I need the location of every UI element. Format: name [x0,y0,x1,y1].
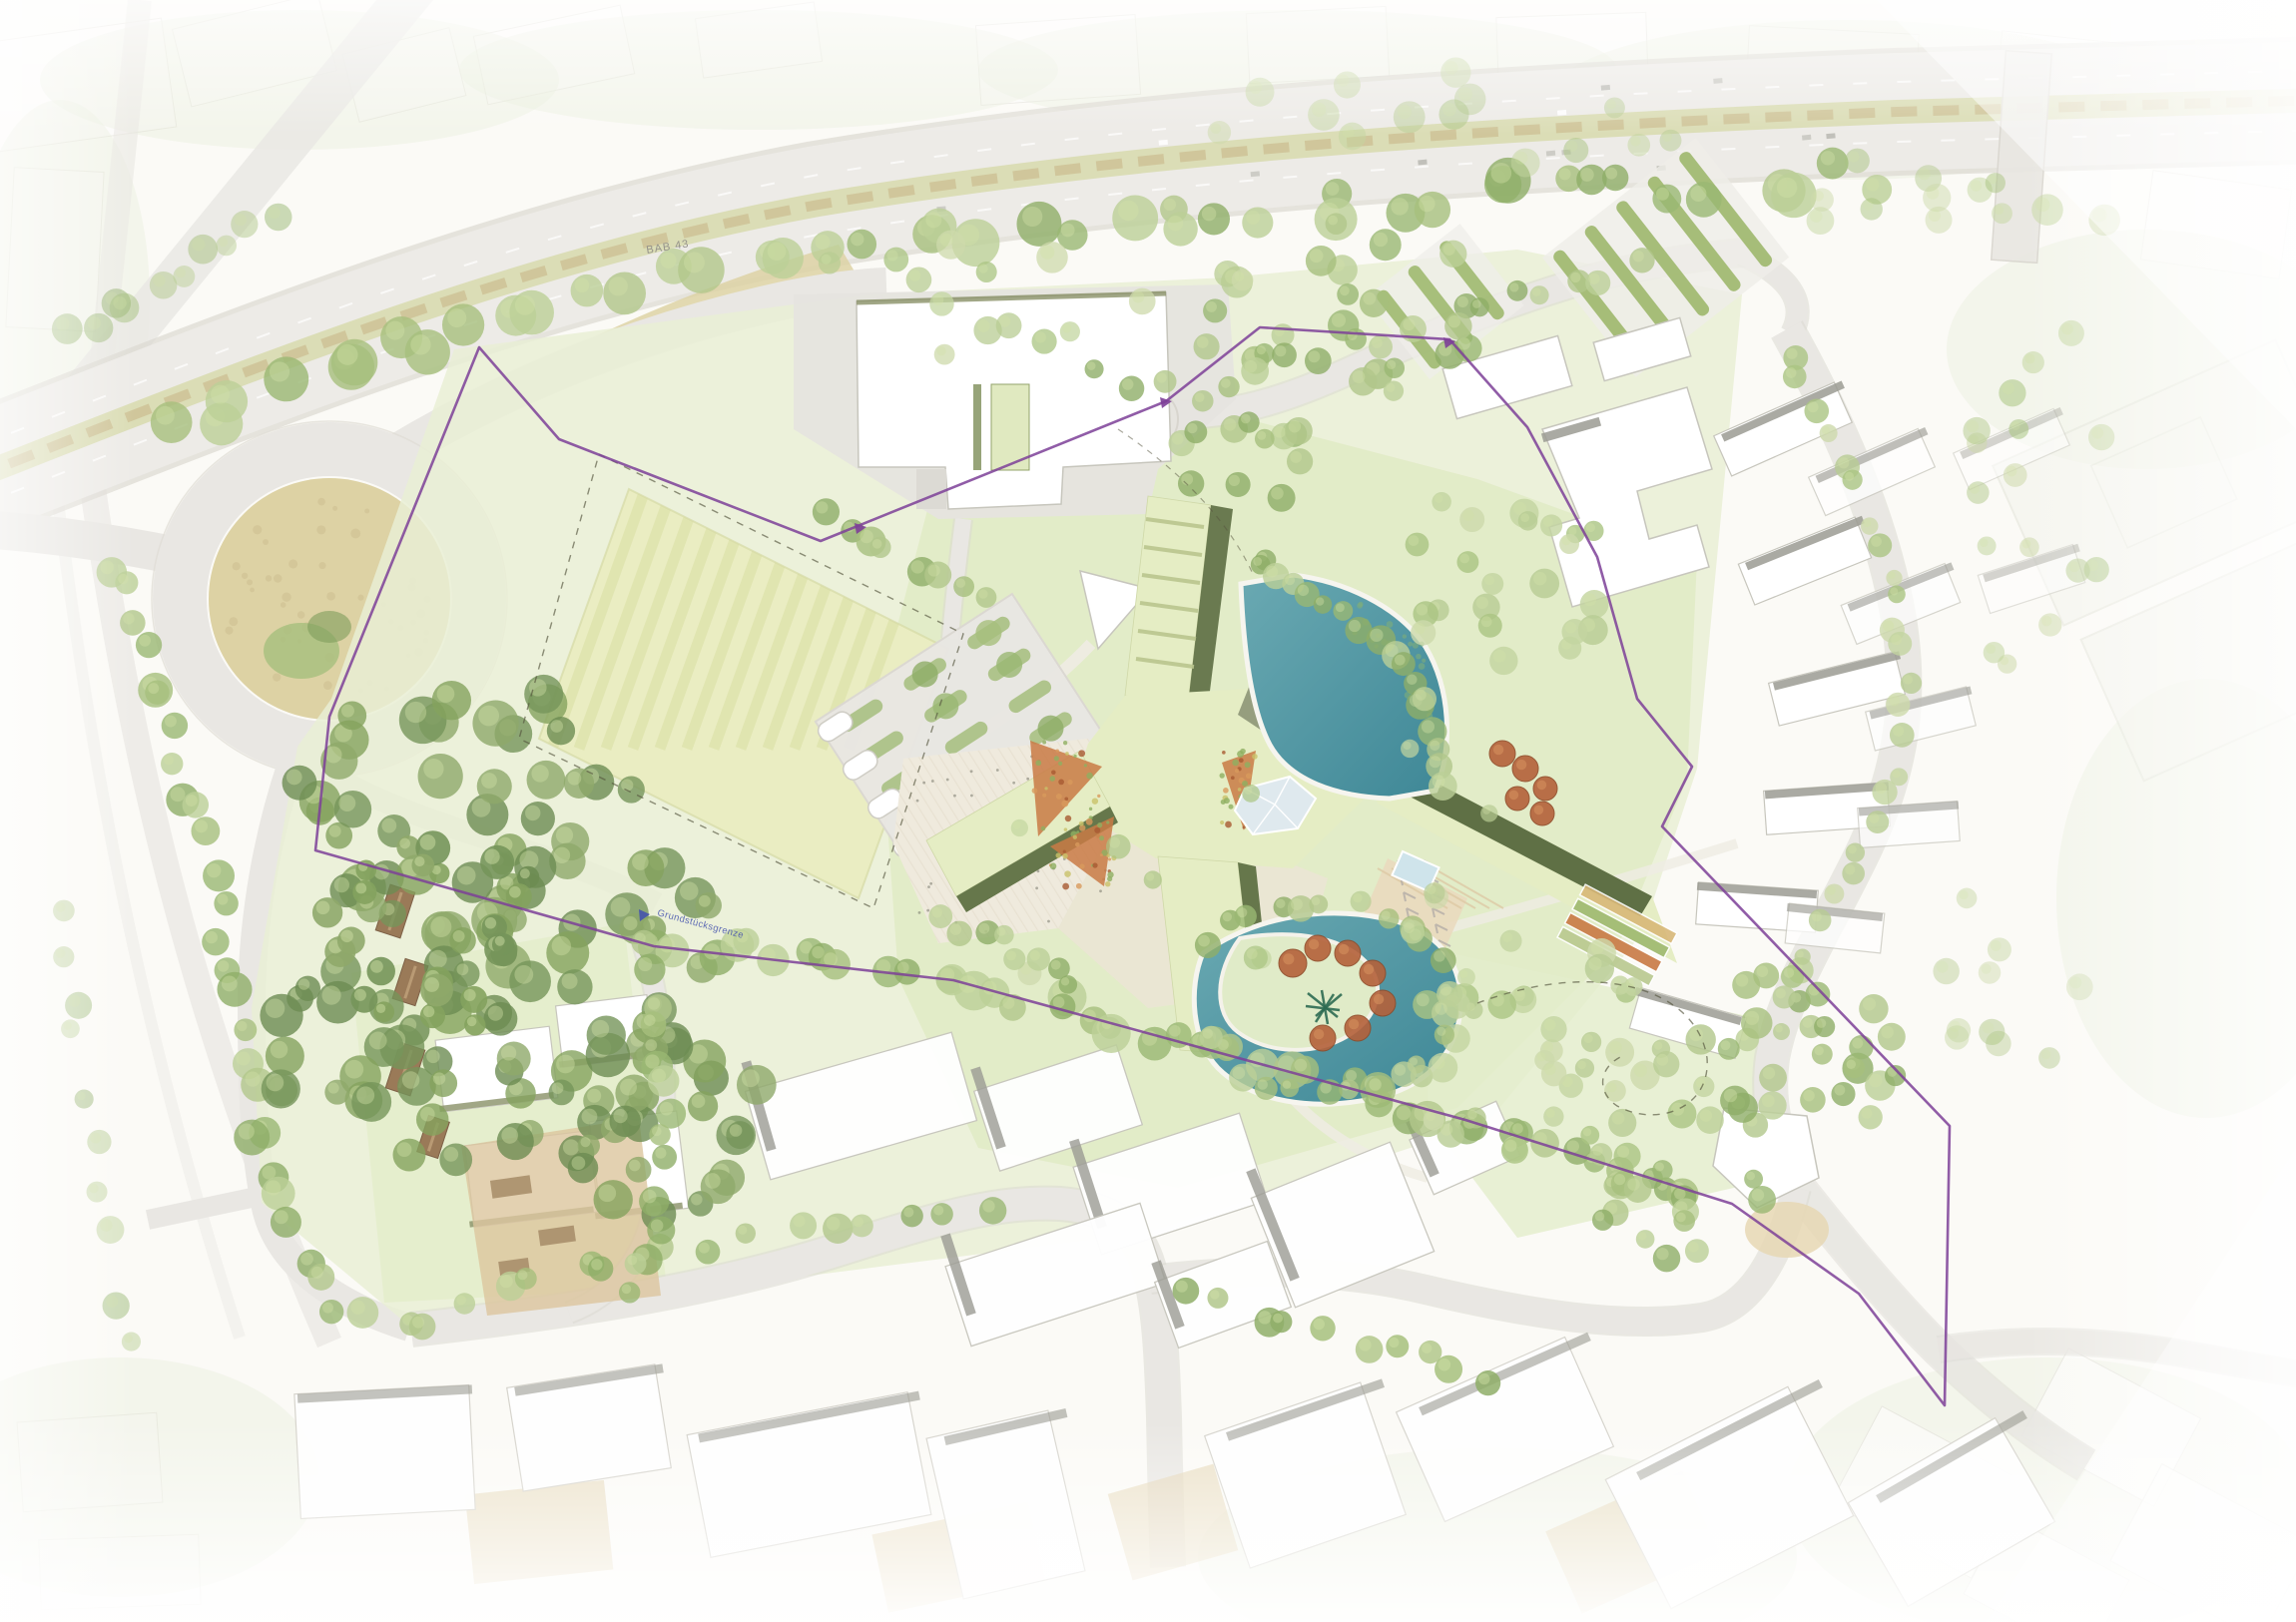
site-plan-svg: BAB 43 Grundstücksgrenze [0,0,2296,1622]
site-plan: BAB 43 Grundstücksgrenze [0,0,2296,1622]
